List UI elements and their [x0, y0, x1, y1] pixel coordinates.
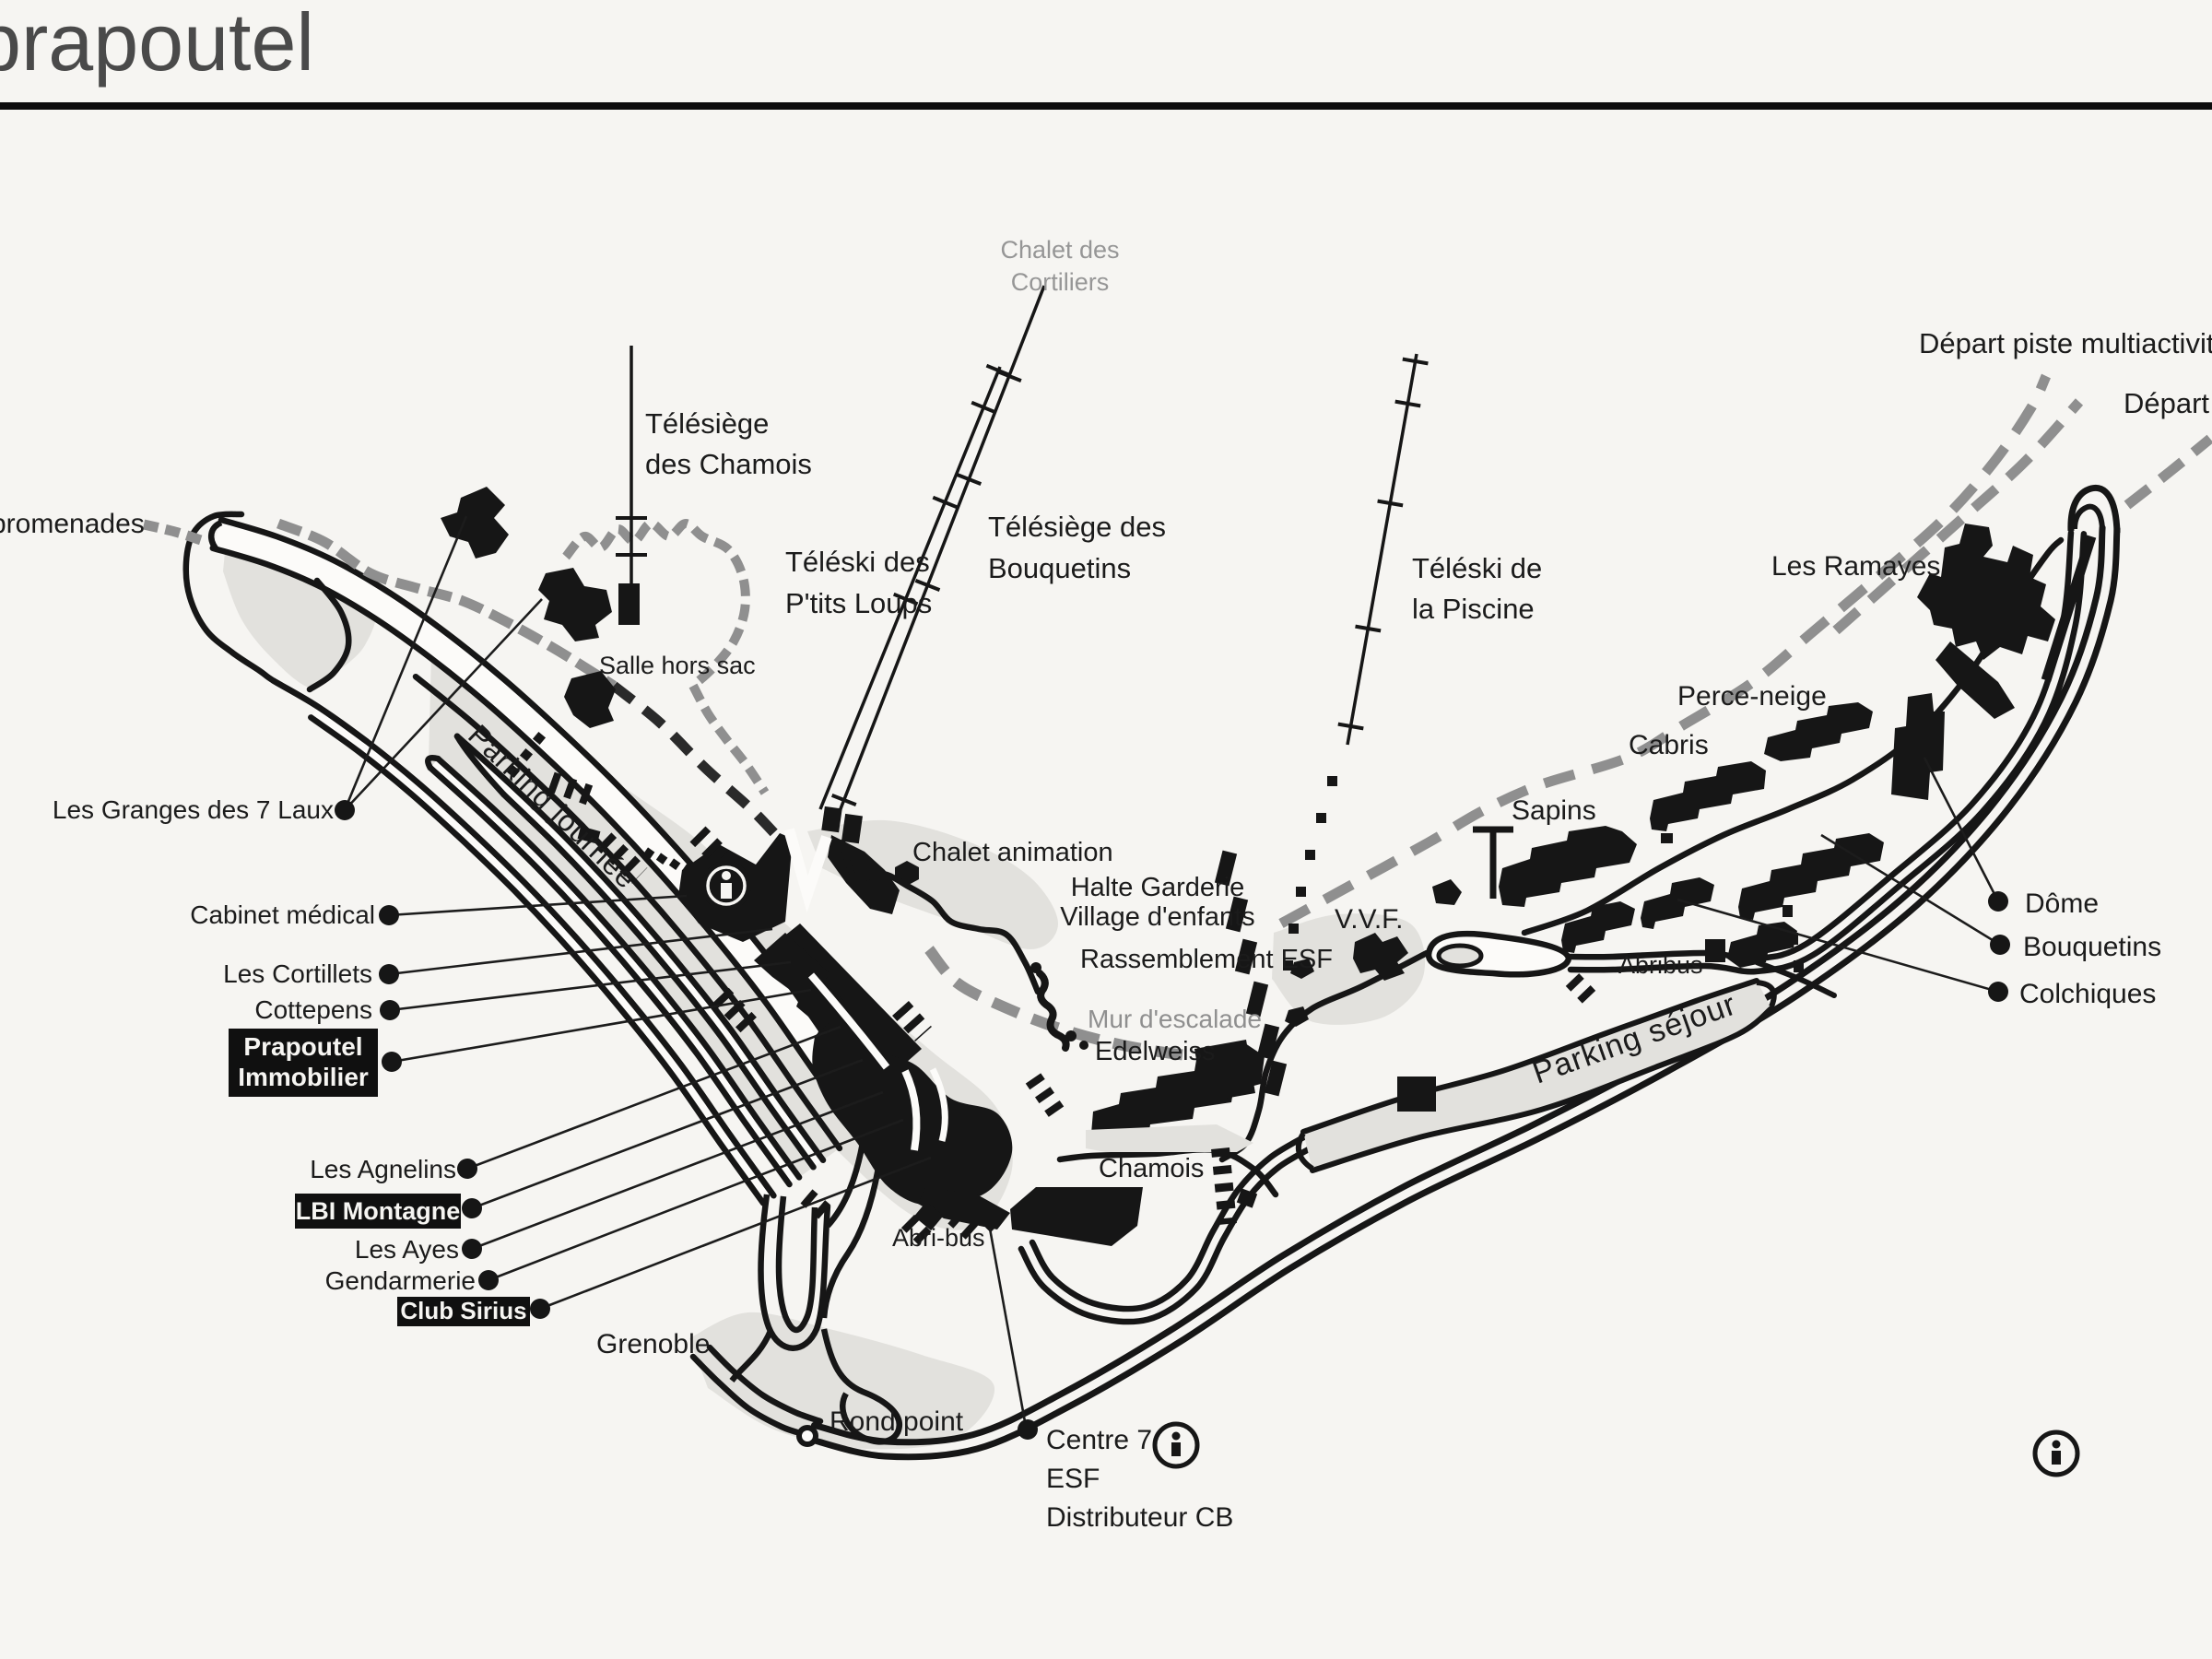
svg-text:Chalet animation: Chalet animation: [912, 838, 1113, 867]
svg-text:Cabinet médical: Cabinet médical: [190, 900, 375, 929]
svg-text:la Piscine: la Piscine: [1412, 593, 1535, 625]
svg-text:Dôme: Dôme: [2025, 888, 2099, 919]
svg-text:Bouquetins: Bouquetins: [2023, 932, 2161, 962]
svg-text:Les Cortillets: Les Cortillets: [223, 959, 372, 988]
svg-text:Gendarmerie: Gendarmerie: [325, 1266, 476, 1295]
svg-text:Centre 7: Centre 7: [1046, 1425, 1152, 1455]
svg-text:LBI Montagne: LBI Montagne: [296, 1197, 460, 1225]
svg-text:Départ piste multiactivités: Départ piste multiactivités: [1919, 327, 2212, 359]
svg-text:Chalet des: Chalet des: [1000, 236, 1119, 264]
svg-text:Les Agnelins: Les Agnelins: [310, 1155, 456, 1183]
svg-text:Abribus: Abribus: [1618, 951, 1703, 979]
svg-text:Rond point: Rond point: [829, 1406, 964, 1437]
svg-text:V.V.F.: V.V.F.: [1335, 904, 1404, 935]
svg-text:P'tits Loups: P'tits Loups: [785, 587, 932, 619]
svg-text:Télésiège des: Télésiège des: [988, 511, 1166, 543]
svg-text:Cortiliers: Cortiliers: [1011, 268, 1110, 296]
svg-text:prapoutel: prapoutel: [0, 0, 314, 88]
svg-text:Club Sirius: Club Sirius: [400, 1297, 526, 1324]
svg-text:Halte Garderie: Halte Garderie: [1071, 873, 1245, 902]
svg-text:Bouquetins: Bouquetins: [988, 552, 1131, 584]
svg-text:Perce-neige: Perce-neige: [1677, 681, 1827, 712]
svg-text:Cottepens: Cottepens: [254, 995, 372, 1024]
svg-text:ESF: ESF: [1046, 1464, 1100, 1494]
svg-text:Cabris: Cabris: [1629, 730, 1709, 760]
svg-text:Distributeur CB: Distributeur CB: [1046, 1502, 1233, 1533]
svg-text:des Chamois: des Chamois: [645, 448, 812, 480]
svg-text:Les Ayes: Les Ayes: [355, 1235, 459, 1264]
svg-text:Chamois: Chamois: [1099, 1154, 1204, 1183]
svg-text:Abri-bus: Abri-bus: [892, 1224, 985, 1252]
svg-text:Prapoutel: Prapoutel: [243, 1032, 362, 1061]
svg-text:promenades: promenades: [0, 509, 145, 539]
svg-text:Rassemblement ESF: Rassemblement ESF: [1080, 945, 1333, 974]
svg-text:Les Ramayes: Les Ramayes: [1771, 551, 1940, 582]
svg-text:Colchiques: Colchiques: [2019, 979, 2156, 1009]
svg-text:Départ piste: Départ piste: [2124, 387, 2212, 419]
svg-text:Télésiège: Télésiège: [645, 407, 769, 440]
svg-text:Téléski des: Téléski des: [785, 546, 930, 578]
svg-text:Edelweiss: Edelweiss: [1095, 1037, 1216, 1066]
svg-text:Sapins: Sapins: [1512, 795, 1596, 826]
svg-text:Village d'enfants: Village d'enfants: [1060, 902, 1254, 932]
svg-text:Téléski de: Téléski de: [1412, 552, 1542, 584]
svg-text:Immobilier: Immobilier: [238, 1063, 369, 1091]
svg-text:Les Granges des 7 Laux: Les Granges des 7 Laux: [53, 795, 334, 824]
svg-text:Grenoble: Grenoble: [596, 1329, 710, 1359]
svg-text:Salle hors sac: Salle hors sac: [599, 652, 756, 679]
svg-text:Mur d'escalade: Mur d'escalade: [1088, 1005, 1262, 1033]
